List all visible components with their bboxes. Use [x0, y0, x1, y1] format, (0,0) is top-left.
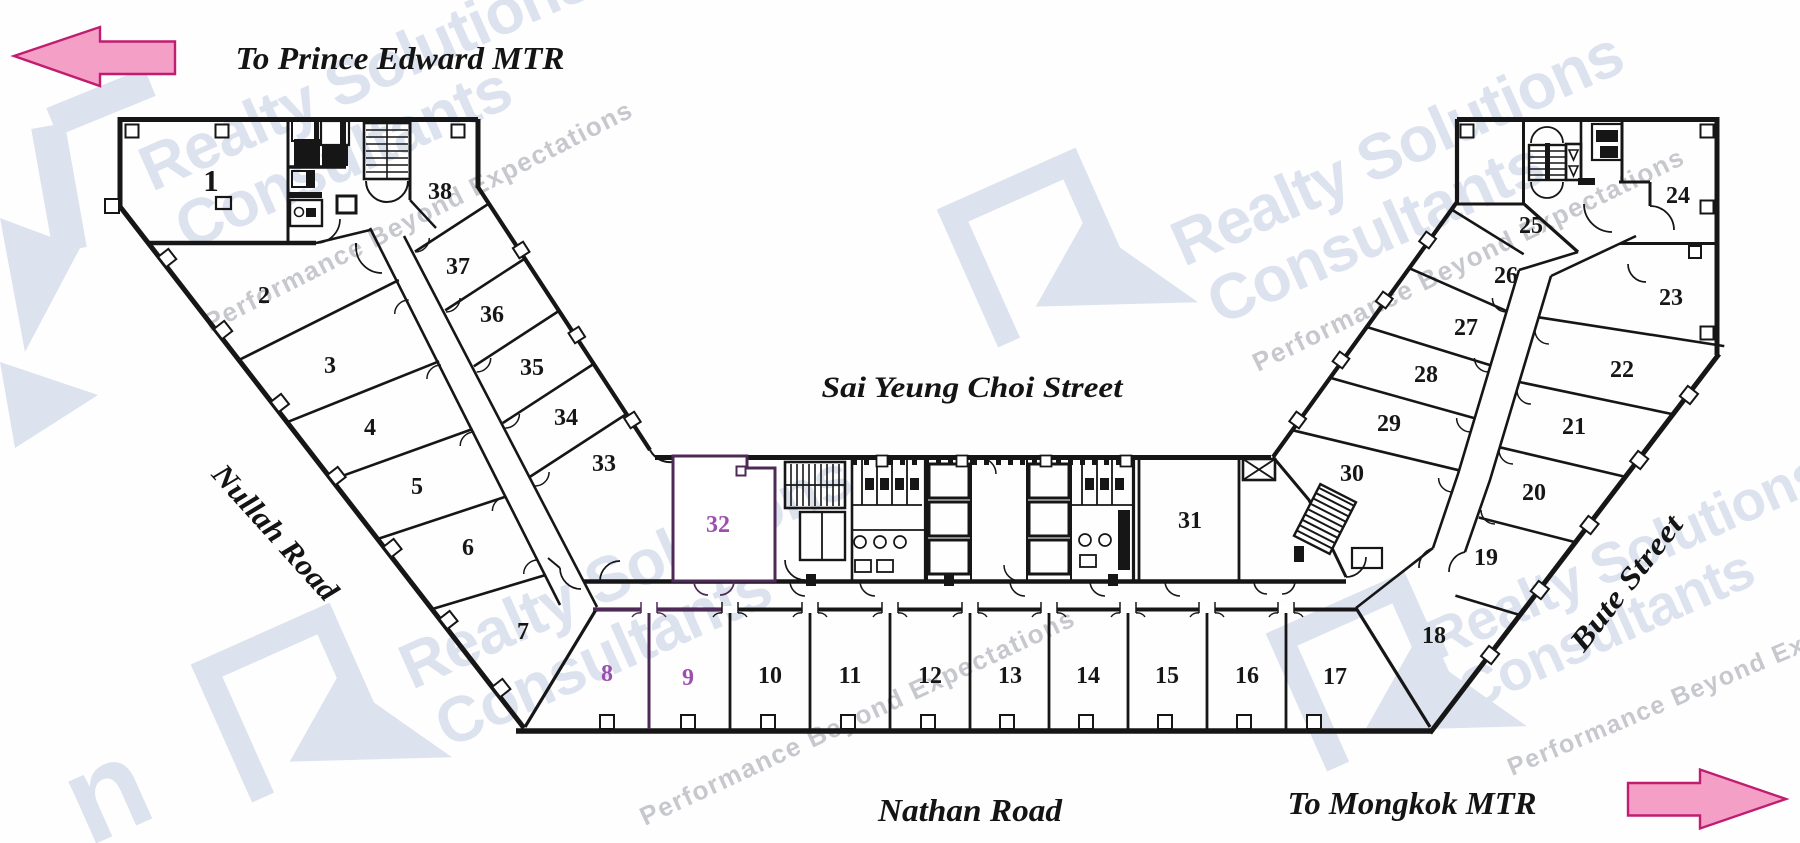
svg-text:To Mongkok MTR: To Mongkok MTR: [1288, 785, 1537, 821]
svg-text:16: 16: [1235, 663, 1259, 689]
svg-text:Nathan Road: Nathan Road: [877, 792, 1063, 828]
svg-text:23: 23: [1659, 285, 1683, 311]
svg-text:20: 20: [1522, 480, 1546, 506]
svg-text:37: 37: [446, 254, 470, 280]
svg-text:15: 15: [1155, 663, 1179, 689]
svg-text:28: 28: [1414, 362, 1438, 388]
svg-text:33: 33: [592, 451, 616, 477]
svg-text:21: 21: [1562, 414, 1586, 440]
svg-text:22: 22: [1610, 357, 1634, 383]
svg-text:13: 13: [998, 663, 1022, 689]
svg-text:27: 27: [1454, 315, 1478, 341]
svg-text:11: 11: [839, 663, 862, 689]
svg-text:25: 25: [1519, 213, 1543, 239]
svg-text:To Prince Edward MTR: To Prince Edward MTR: [236, 40, 565, 76]
svg-text:12: 12: [918, 663, 942, 689]
svg-text:26: 26: [1494, 263, 1518, 289]
svg-text:1: 1: [203, 163, 219, 198]
svg-text:35: 35: [520, 355, 544, 381]
svg-text:4: 4: [364, 415, 376, 441]
svg-text:Sai Yeung Choi Street: Sai Yeung Choi Street: [822, 371, 1125, 404]
svg-text:5: 5: [411, 474, 423, 500]
svg-text:7: 7: [517, 619, 529, 645]
svg-text:30: 30: [1340, 461, 1364, 487]
svg-text:36: 36: [480, 302, 504, 328]
svg-text:8: 8: [601, 661, 613, 687]
svg-text:32: 32: [706, 512, 730, 538]
svg-text:31: 31: [1178, 508, 1202, 534]
svg-text:10: 10: [758, 663, 782, 689]
svg-text:14: 14: [1076, 663, 1100, 689]
svg-text:9: 9: [682, 665, 694, 691]
svg-text:18: 18: [1422, 623, 1446, 649]
svg-text:2: 2: [258, 283, 270, 309]
svg-text:19: 19: [1474, 545, 1498, 571]
svg-text:6: 6: [462, 535, 474, 561]
svg-text:34: 34: [554, 405, 578, 431]
svg-text:3: 3: [324, 353, 336, 379]
svg-text:24: 24: [1666, 183, 1690, 209]
svg-text:29: 29: [1377, 411, 1401, 437]
svg-text:38: 38: [428, 179, 452, 205]
svg-text:17: 17: [1323, 664, 1347, 690]
